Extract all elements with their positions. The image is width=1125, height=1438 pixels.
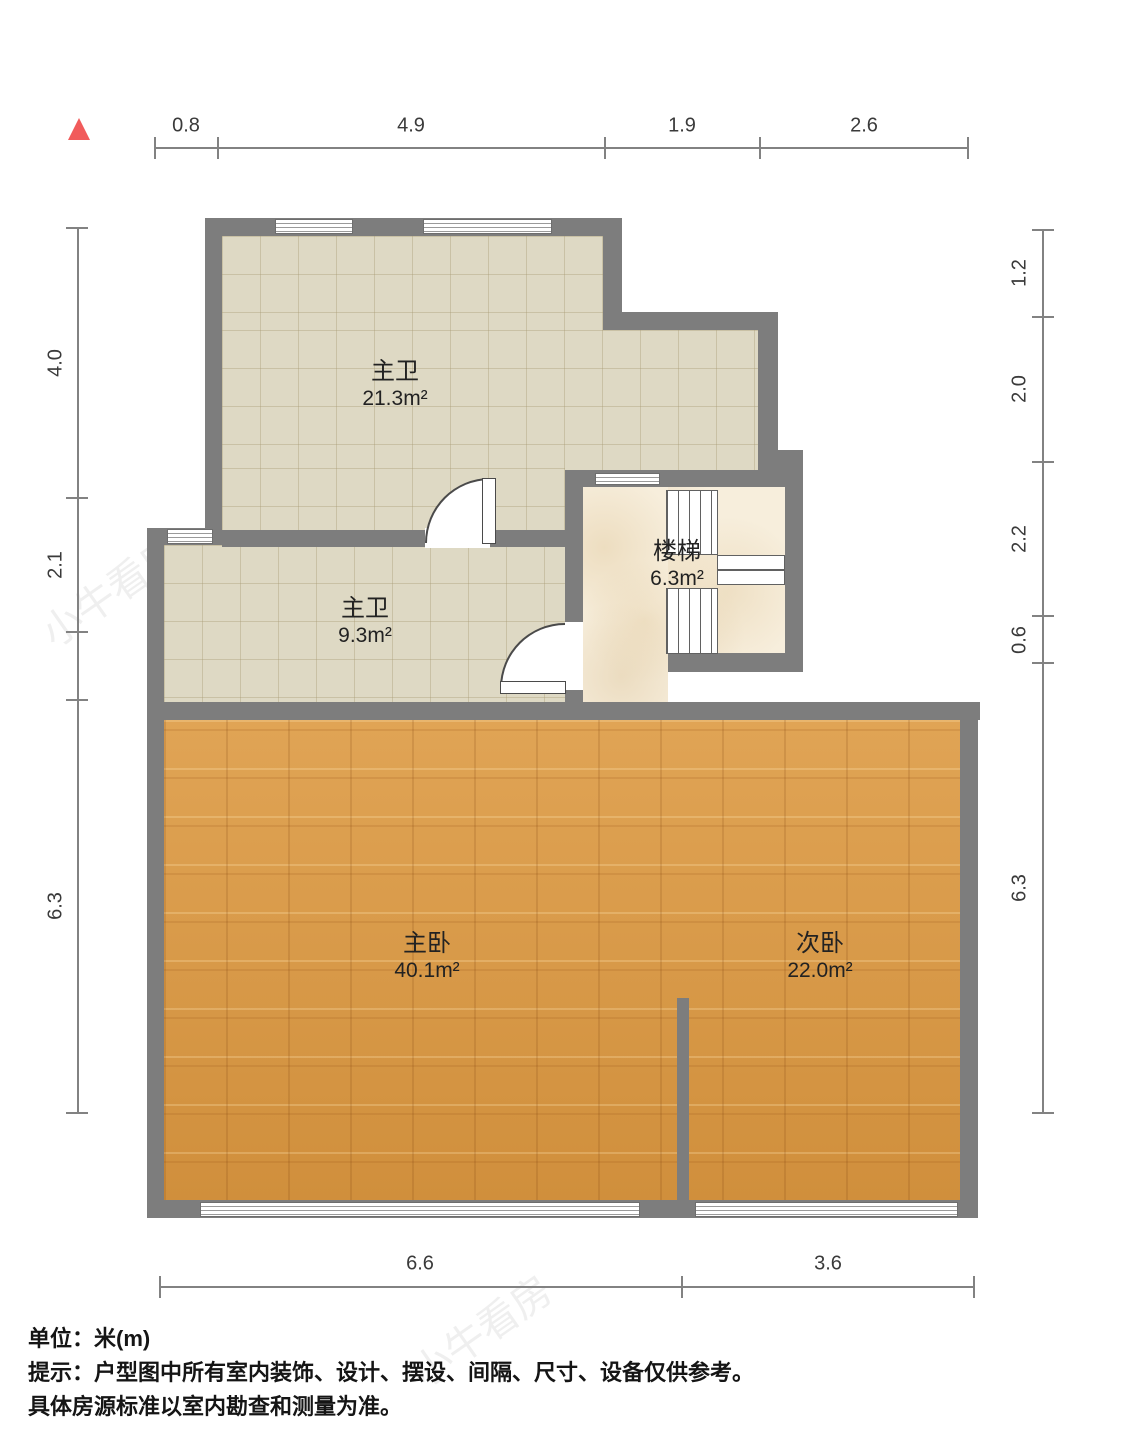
dim-tick: [154, 137, 156, 159]
dim-tick: [159, 1276, 161, 1298]
dim-label-bottom: 6.6: [406, 1253, 434, 1276]
dim-line-bottom: [160, 1286, 974, 1288]
dim-tick: [66, 227, 88, 229]
dim-tick: [681, 1276, 683, 1298]
window-bathmid: [167, 529, 213, 544]
dim-line-left: [77, 228, 79, 1113]
room-area: 40.1m²: [394, 958, 459, 984]
dim-tick: [967, 137, 969, 159]
dim-label-right: 1.2: [1009, 259, 1032, 287]
wall-bedrooms-top: [147, 702, 980, 720]
tip-line-2: 具体房源标准以室内勘查和测量为准。: [28, 1390, 754, 1424]
room-name: 楼梯: [650, 538, 704, 566]
wall-left-upper: [205, 218, 222, 544]
window-bottom-second: [695, 1202, 958, 1217]
wall-bedroom-divider: [677, 998, 689, 1200]
wall-bedrooms-right: [960, 702, 978, 1218]
dim-label-bottom: 3.6: [814, 1253, 842, 1276]
dim-tick: [973, 1276, 975, 1298]
window-top-2: [423, 219, 552, 234]
dim-label-top: 2.6: [850, 115, 878, 138]
wall-step-horizontal: [603, 312, 778, 330]
north-indicator-icon: [68, 118, 90, 140]
floor-bath-top-a: [222, 236, 603, 336]
dim-tick: [1032, 615, 1054, 617]
wall-stairs-left: [565, 470, 583, 622]
wall-stairs-right: [785, 466, 803, 672]
room-label-second: 次卧 22.0m²: [787, 930, 852, 984]
room-label-bath-top: 主卫 21.3m²: [362, 358, 427, 412]
wall-bath-divider-left: [222, 530, 425, 547]
room-name: 主卫: [362, 358, 427, 386]
dim-label-left: 4.0: [45, 349, 68, 377]
dim-label-left: 2.1: [45, 551, 68, 579]
door-leaf-stairs-icon: [500, 681, 566, 694]
dim-tick: [1032, 316, 1054, 318]
wall-top: [205, 218, 622, 236]
floor-stairs-lower: [583, 487, 668, 703]
dim-label-right: 2.0: [1009, 375, 1032, 403]
unit-value: 米(m): [94, 1326, 150, 1351]
dim-tick: [1032, 1112, 1054, 1114]
dim-tick: [1032, 229, 1054, 231]
room-label-bath-mid: 主卫 9.3m²: [338, 595, 392, 649]
unit-line: 单位：米(m): [28, 1322, 754, 1356]
dim-tick: [604, 137, 606, 159]
unit-label: 单位：: [28, 1326, 94, 1351]
room-name: 次卧: [787, 930, 852, 958]
dim-tick: [1032, 662, 1054, 664]
wall-stairs-bottom: [668, 653, 803, 672]
dim-tick: [66, 1112, 88, 1114]
dim-label-right: 0.6: [1009, 626, 1032, 654]
dim-line-right: [1042, 230, 1044, 1113]
wall-bath-divider-right: [490, 530, 565, 547]
dim-label-top: 4.9: [397, 115, 425, 138]
door-leaf-bath-icon: [482, 478, 496, 544]
room-area: 9.3m²: [338, 623, 392, 649]
dim-tick: [66, 497, 88, 499]
dim-tick: [66, 631, 88, 633]
dim-label-right: 6.3: [1009, 874, 1032, 902]
dim-label-right: 2.2: [1009, 525, 1032, 553]
room-label-master: 主卧 40.1m²: [394, 930, 459, 984]
window-stairs: [595, 473, 660, 485]
stairs-treads-bottom-icon: [666, 588, 718, 654]
footer-notes: 单位：米(m) 提示：户型图中所有室内装饰、设计、摆设、间隔、尺寸、设备仅供参考…: [28, 1322, 754, 1424]
room-label-stairs: 楼梯 6.3m²: [650, 538, 704, 592]
dim-label-top: 0.8: [172, 115, 200, 138]
tip-line-1: 提示：户型图中所有室内装饰、设计、摆设、间隔、尺寸、设备仅供参考。: [28, 1356, 754, 1390]
floorplan-canvas: 小牛看房 小牛看房 小牛看房 小牛看房 小牛看房 主卫 21: [0, 0, 1125, 1438]
room-name: 主卧: [394, 930, 459, 958]
window-top-1: [275, 219, 353, 234]
dim-label-left: 6.3: [45, 892, 68, 920]
dim-tick: [1032, 461, 1054, 463]
room-area: 21.3m²: [362, 386, 427, 412]
dim-tick: [217, 137, 219, 159]
floor-bath-top-b: [222, 330, 758, 470]
dim-line-top: [155, 147, 968, 149]
stairs-landing-icon: [717, 555, 785, 585]
window-bottom-master: [200, 1202, 640, 1217]
room-area: 6.3m²: [650, 566, 704, 592]
dim-label-top: 1.9: [668, 115, 696, 138]
dim-tick: [66, 699, 88, 701]
room-name: 主卫: [338, 595, 392, 623]
room-area: 22.0m²: [787, 958, 852, 984]
floor-bath-top-c: [222, 468, 565, 532]
wall-left-lower: [147, 528, 164, 1218]
dim-tick: [759, 137, 761, 159]
